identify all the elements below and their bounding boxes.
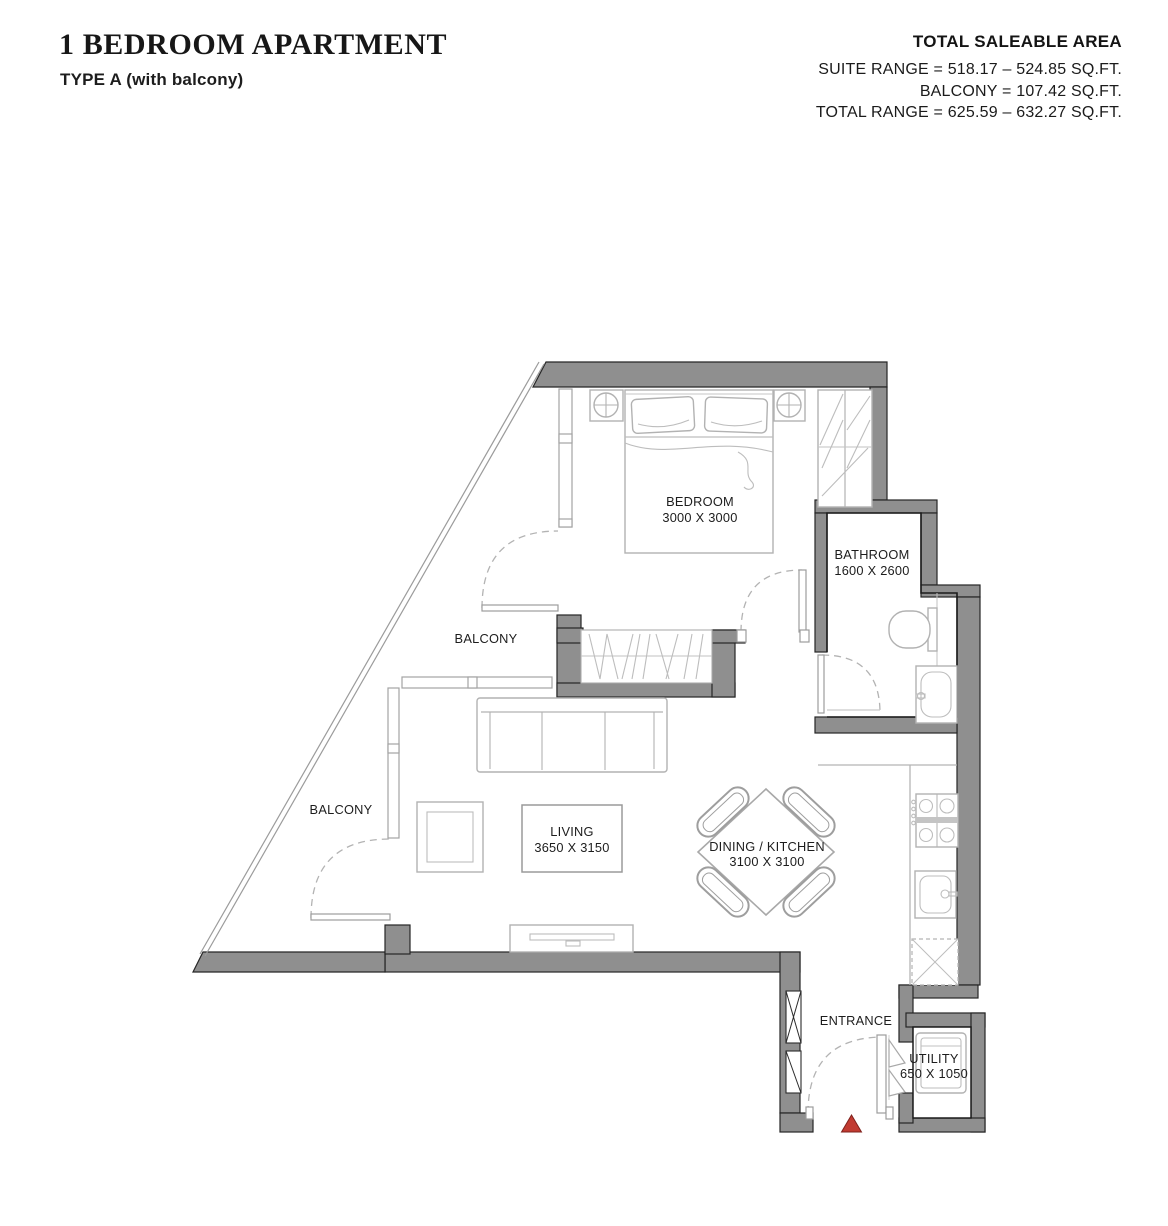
bedroom-door xyxy=(737,570,809,642)
room-dims-bathroom: 1600 X 2600 xyxy=(834,563,909,578)
room-label-bathroom: BATHROOM xyxy=(835,547,910,562)
closet-symbol xyxy=(581,630,712,683)
room-label-utility: UTILITY xyxy=(909,1051,959,1066)
bedroom-window xyxy=(559,389,572,527)
wardrobe-symbol xyxy=(818,390,872,507)
room-label-dining-kitchen: DINING / KITCHEN xyxy=(709,839,825,854)
bathroom-door xyxy=(818,655,880,713)
shaft-symbol xyxy=(786,1051,801,1093)
shaft-symbol xyxy=(786,991,801,1043)
toilet-symbol xyxy=(889,608,937,651)
room-dims-dining-kitchen: 3100 X 3100 xyxy=(729,854,804,869)
kitchen-sink-symbol xyxy=(915,871,957,918)
floor-plan-page: 1 BEDROOM APARTMENT TYPE A (with balcony… xyxy=(0,0,1168,1226)
room-dims-bedroom: 3000 X 3000 xyxy=(662,510,737,525)
bedroom-balcony-door xyxy=(482,531,558,611)
floor-plan-svg: BEDROOM 3000 X 3000 BATHROOM 1600 X 2600… xyxy=(0,0,1168,1226)
bed-symbol xyxy=(625,390,773,553)
entrance-marker-icon xyxy=(842,1115,862,1132)
nightstand-left-symbol xyxy=(590,390,623,421)
room-label-bedroom: BEDROOM xyxy=(666,494,734,509)
living-balcony-door xyxy=(311,839,390,920)
room-label-living: LIVING xyxy=(550,824,593,839)
sofa-symbol xyxy=(477,698,667,772)
nightstand-right-symbol xyxy=(774,390,805,421)
room-dims-utility: 650 X 1050 xyxy=(900,1066,968,1081)
room-dims-living: 3650 X 3150 xyxy=(534,840,609,855)
stove-icon xyxy=(912,794,958,847)
armchair-symbol xyxy=(417,802,483,872)
entrance-door xyxy=(806,1035,893,1119)
vanity-sink-symbol xyxy=(916,666,957,723)
balcony-railing xyxy=(200,362,544,956)
room-label-balcony-upper: BALCONY xyxy=(455,631,518,646)
tv-unit-symbol xyxy=(510,925,633,952)
room-label-entrance: ENTRANCE xyxy=(820,1013,892,1028)
fridge-symbol xyxy=(912,939,958,985)
room-label-balcony-lower: BALCONY xyxy=(310,802,373,817)
